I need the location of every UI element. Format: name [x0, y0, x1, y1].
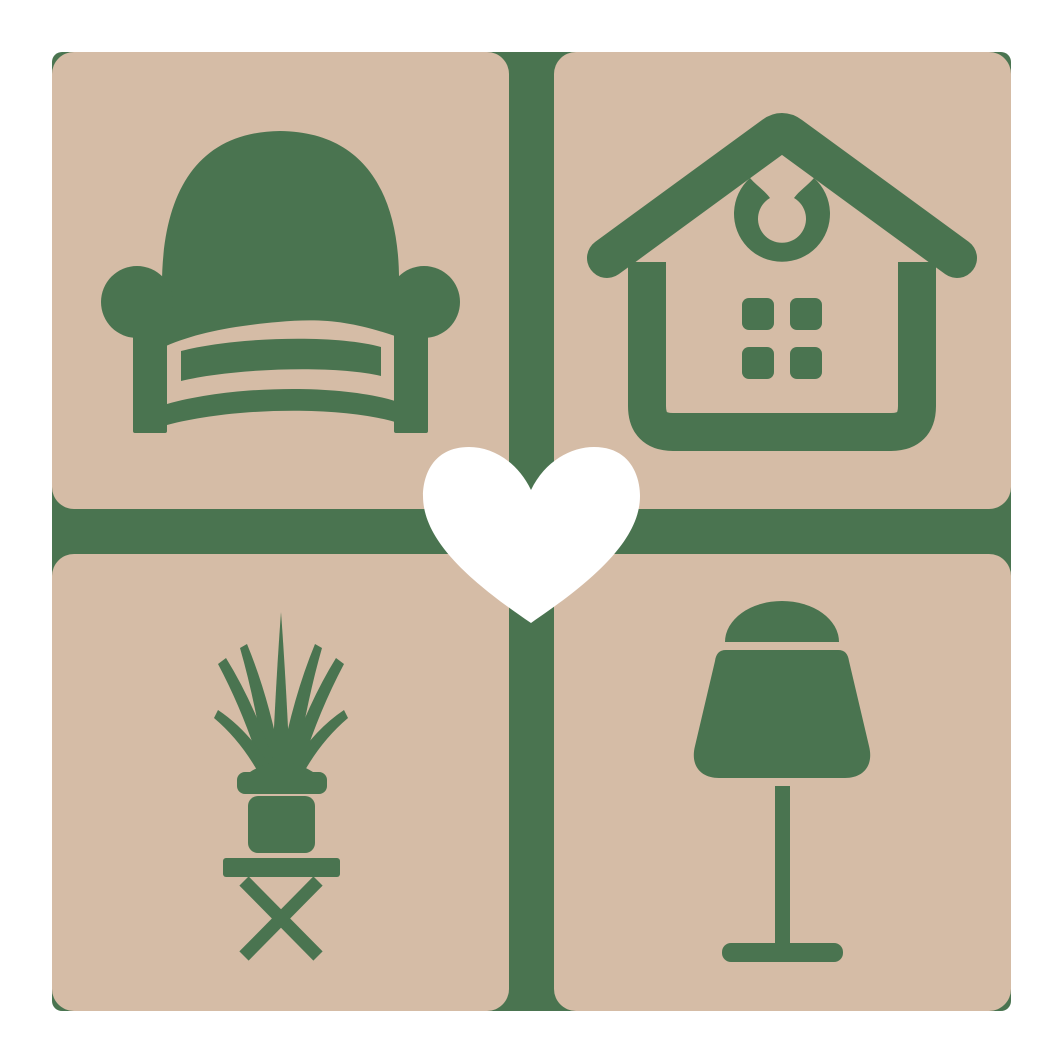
- lamp-shade: [694, 650, 870, 778]
- house-window: [790, 298, 822, 330]
- logo-canvas: [0, 0, 1063, 1063]
- house-window: [742, 298, 774, 330]
- home-decor-heart-logo: [0, 0, 1063, 1063]
- armchair-left-leg: [133, 302, 167, 433]
- house-window: [790, 347, 822, 379]
- lamp-stem: [775, 786, 790, 945]
- house-window: [742, 347, 774, 379]
- stool-top: [223, 858, 340, 877]
- armchair-right-leg: [394, 302, 428, 433]
- plant-pot-rim: [237, 772, 327, 794]
- plant-pot-body: [248, 796, 315, 853]
- lamp-base: [722, 943, 843, 962]
